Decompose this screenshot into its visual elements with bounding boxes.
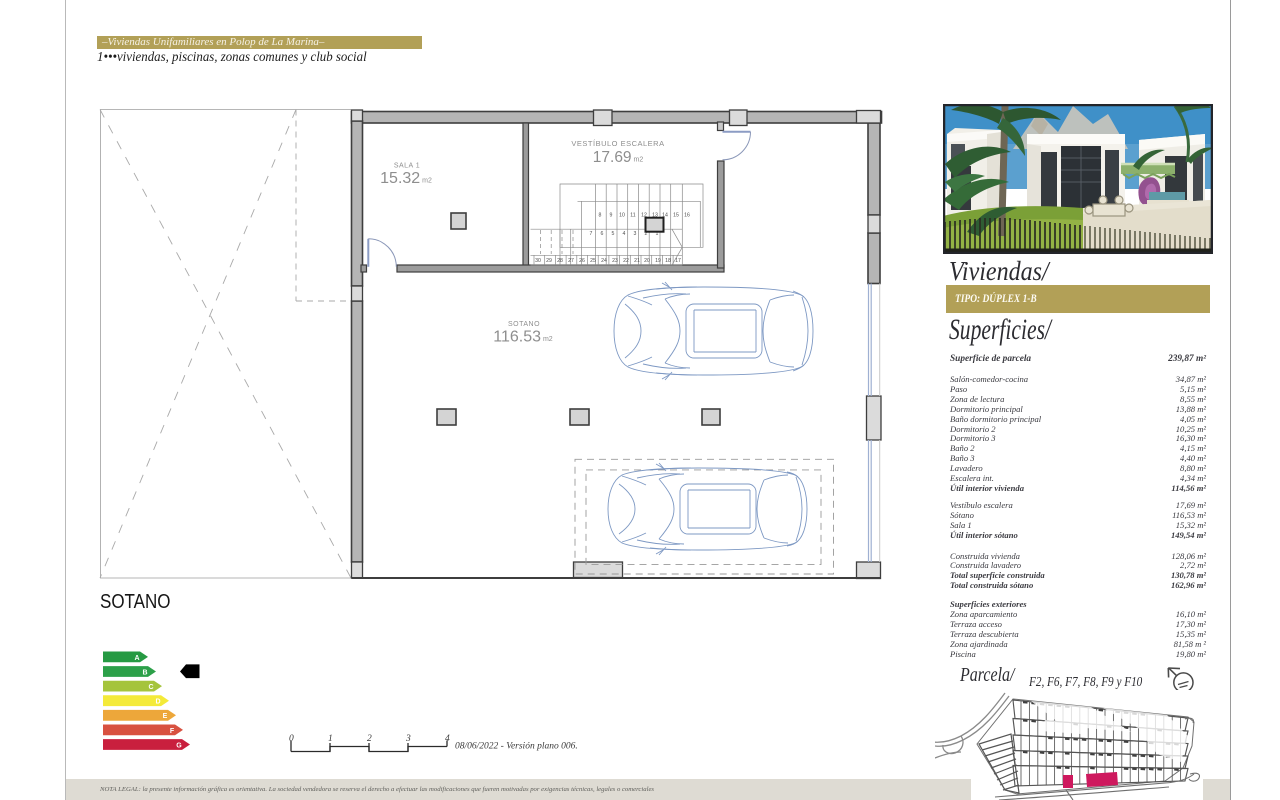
svg-text:8: 8 <box>599 213 602 219</box>
svg-text:17: 17 <box>675 258 681 264</box>
svg-text:30: 30 <box>535 258 541 264</box>
svg-text:7: 7 <box>590 231 593 237</box>
svg-text:F: F <box>170 728 175 735</box>
svg-text:15: 15 <box>673 213 679 219</box>
svg-text:22: 22 <box>623 258 629 264</box>
svg-text:27: 27 <box>568 258 574 264</box>
svg-text:9: 9 <box>610 213 613 219</box>
svg-text:10: 10 <box>619 213 625 219</box>
svg-text:VESTÍBULO ESCALERA: VESTÍBULO ESCALERA <box>571 139 664 148</box>
svg-text:C: C <box>148 684 153 691</box>
svg-text:E: E <box>163 713 168 720</box>
svg-text:A: A <box>134 655 139 662</box>
svg-text:18: 18 <box>665 258 671 264</box>
svg-text:19: 19 <box>655 258 661 264</box>
svg-text:116.53 m2: 116.53 m2 <box>493 329 553 346</box>
svg-text:6: 6 <box>601 231 604 237</box>
svg-text:11: 11 <box>630 213 635 219</box>
svg-text:24: 24 <box>601 258 607 264</box>
svg-text:1: 1 <box>328 734 333 744</box>
svg-text:16: 16 <box>684 213 690 219</box>
svg-text:29: 29 <box>546 258 552 264</box>
svg-text:28: 28 <box>557 258 563 264</box>
svg-text:08/06/2022 - Versión plano 006: 08/06/2022 - Versión plano 006. <box>455 742 578 752</box>
svg-text:4: 4 <box>445 734 450 744</box>
svg-text:4: 4 <box>623 231 626 237</box>
svg-text:3: 3 <box>634 231 637 237</box>
svg-text:21: 21 <box>634 258 640 264</box>
svg-text:26: 26 <box>579 258 585 264</box>
svg-text:20: 20 <box>644 258 650 264</box>
svg-text:17.69 m2: 17.69 m2 <box>593 149 644 166</box>
svg-text:15.32 m2: 15.32 m2 <box>380 170 432 187</box>
svg-text:25: 25 <box>590 258 596 264</box>
svg-text:SOTANO: SOTANO <box>508 321 540 328</box>
svg-text:SALA 1: SALA 1 <box>394 163 420 170</box>
svg-text:D: D <box>155 699 160 706</box>
svg-text:2: 2 <box>367 734 372 744</box>
svg-text:B: B <box>142 669 147 676</box>
svg-text:23: 23 <box>612 258 618 264</box>
svg-text:0: 0 <box>289 734 294 744</box>
svg-text:3: 3 <box>405 734 411 744</box>
svg-text:5: 5 <box>612 231 615 237</box>
svg-text:G: G <box>176 743 182 750</box>
